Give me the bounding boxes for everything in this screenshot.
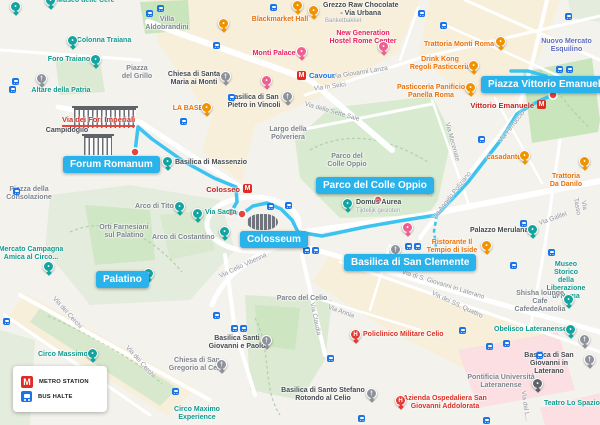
teal-poi-pin[interactable]: • (10, 1, 21, 12)
pin-glyph: † (224, 74, 227, 80)
university-pin[interactable]: • (532, 378, 543, 389)
pin-glyph: † (220, 362, 223, 368)
pin-glyph: † (40, 76, 43, 82)
bus-stop-icon[interactable] (3, 318, 10, 325)
teal-poi-pin[interactable]: • (87, 348, 98, 359)
bus-stop-icon[interactable] (285, 202, 292, 209)
bus-stop-icon[interactable] (240, 325, 247, 332)
pin-glyph: • (531, 227, 533, 233)
bus-stop-icon[interactable] (548, 249, 555, 256)
map-label-museo-delle-cere[interactable]: Museo delle Cere (57, 0, 115, 5)
bus-stop-icon[interactable] (270, 4, 277, 11)
highlighted-street-label: Via dei Fori Imperiali (62, 115, 135, 127)
bus-stop-icon[interactable] (228, 94, 235, 101)
pin-glyph: • (166, 159, 168, 165)
church-pin[interactable]: † (366, 388, 377, 399)
map-label-parco-del-celio: Parco del Celio (277, 295, 328, 303)
map-label-casadante[interactable]: casadante (487, 154, 521, 162)
orange-poi-pin[interactable]: • (495, 36, 506, 47)
pin-glyph: • (47, 264, 49, 270)
pin-glyph: • (49, 0, 51, 4)
map-label-shisha-lounge-cafe: Shisha lounge Cafe CafedeAnatolia (510, 290, 570, 314)
bus-stop-icon[interactable] (267, 203, 274, 210)
bus-stop-icon[interactable] (303, 247, 310, 254)
map-label-via-annia: Via Annia (327, 304, 355, 320)
pin-glyph: • (485, 243, 487, 249)
teal-poi-pin[interactable]: • (527, 224, 538, 235)
bus-stop-icon[interactable] (483, 417, 490, 424)
destination-label-forum-romanum[interactable]: Forum Romanum (63, 156, 160, 173)
map-label-colonna-traiana[interactable]: Colonna Traiana (77, 37, 131, 45)
bus-stop-icon[interactable] (172, 388, 179, 395)
church-pin[interactable]: † (220, 71, 231, 82)
map-label-trattoria-da-danilo[interactable]: Trattoria Da Danilo (549, 173, 583, 189)
pink-poi-pin[interactable]: • (402, 222, 413, 233)
pin-glyph: • (223, 229, 225, 235)
destination-label-basilica-di-san-clemente[interactable]: Basilica di San Clemente (344, 254, 476, 271)
map-label-basilica-santi[interactable]: Basilica Santi Giovanni e Paolo (209, 335, 266, 351)
map-label-chiesa-di-santa[interactable]: Chiesa di Santa Maria ai Monti (168, 71, 220, 87)
pin-glyph: † (286, 94, 289, 100)
church-pin[interactable]: † (282, 91, 293, 102)
map-label-foro-traiano[interactable]: Foro Traiano (48, 56, 90, 64)
map-label-altare-della-patria[interactable]: Altare della Patria (31, 87, 90, 95)
map-label-blackmarket-hall[interactable]: Blackmarket Hall (252, 16, 308, 24)
metro-station-icon[interactable]: M (243, 184, 252, 193)
orange-poi-pin[interactable]: • (308, 5, 319, 16)
map-label-mercato-campagna[interactable]: Mercato Campagna Amica al Circo... (0, 246, 63, 262)
teal-poi-pin[interactable]: • (90, 54, 101, 65)
map-label-drink-kong[interactable]: Drink Kong Regoli Pasticceria (410, 56, 470, 72)
pin-glyph: † (265, 338, 268, 344)
bus-stop-icon[interactable] (503, 340, 510, 347)
orange-poi-pin[interactable]: • (468, 60, 479, 71)
hospital-pin[interactable]: H (350, 329, 361, 340)
church-pin[interactable]: † (216, 359, 227, 370)
map-label-arco-di-tito: Arco di Tito (135, 203, 174, 211)
destination-label-colosseum[interactable]: Colosseum (240, 231, 308, 248)
bus-stop-icon[interactable] (312, 247, 319, 254)
teal-poi-pin[interactable]: • (565, 324, 576, 335)
map-label-via-galilei: Via Galilei (538, 211, 568, 228)
pin-glyph: • (569, 327, 571, 333)
teal-poi-pin[interactable]: • (174, 201, 185, 212)
map-label-via-claudia: Via Claudia (308, 302, 322, 336)
map-label-azienda-ospedaliera-san[interactable]: Azienda Ospedaliera San Giovanni Addolor… (403, 395, 487, 411)
teal-poi-pin[interactable]: • (43, 261, 54, 272)
pink-poi-pin[interactable]: • (261, 75, 272, 86)
teal-poi-pin[interactable]: • (67, 35, 78, 46)
pin-glyph: • (472, 63, 474, 69)
bus-stop-icon[interactable] (566, 66, 573, 73)
pin-glyph: • (265, 78, 267, 84)
church-pin[interactable]: † (584, 354, 595, 365)
pin-glyph: • (300, 49, 302, 55)
teal-poi-pin[interactable]: • (563, 294, 574, 305)
pin-glyph: • (94, 57, 96, 63)
pin-glyph: • (205, 105, 207, 111)
map-label-pasticceria-panificio[interactable]: Pasticceria Panificio Panella Roma (397, 84, 465, 100)
map-label-via-tasso: Via Tasso (571, 195, 589, 217)
map-label-via-ferruccio: Via Ferruccio (497, 110, 526, 145)
pin-glyph: • (71, 38, 73, 44)
map-label-la-base[interactable]: LA BASE (173, 105, 203, 113)
map-label-via-dei-cerchi: Via dei Cerchi (124, 345, 157, 380)
pin-glyph: † (370, 391, 373, 397)
map-label-monti-palace[interactable]: Monti Palace (253, 50, 296, 58)
bus-stop-icon[interactable] (358, 415, 365, 422)
map-label-basilica-di-san[interactable]: Basilica di San Giovanni in Laterano (524, 352, 575, 376)
map-label-domus-aurea[interactable]: Domus Aurea (356, 199, 401, 207)
pin-glyph: H (353, 332, 357, 338)
bus-stop-icon[interactable] (157, 5, 164, 12)
orange-poi-pin[interactable]: • (218, 18, 229, 29)
map-label-piazza: Piazza del Grillo (122, 65, 152, 81)
orange-poi-pin[interactable]: • (465, 82, 476, 93)
metro-station-icon[interactable]: M (297, 71, 306, 80)
pin-glyph: • (222, 21, 224, 27)
destination-label-parco-del-colle-oppio[interactable]: Parco del Colle Oppio (316, 177, 434, 194)
map-label-via-dei-ss-quattro: Via dei SS. Quattro (430, 290, 483, 320)
map-label-via-sacra[interactable]: Via Sacra (205, 209, 236, 217)
teal-poi-pin[interactable]: • (162, 156, 173, 167)
orange-poi-pin[interactable]: • (519, 150, 530, 161)
map-label-grezzo-raw-chocolate[interactable]: Grezzo Raw Chocolate - Via Urbana (323, 2, 398, 18)
orange-poi-pin[interactable]: • (481, 240, 492, 251)
map-label-basilica-di-massenzio[interactable]: Basilica di Massenzio (175, 159, 247, 167)
map-label-orti-farnesiani: Orti Farnesiani sul Palatino (99, 224, 148, 240)
bus-stop-icon[interactable] (565, 13, 572, 20)
pin-glyph: • (196, 211, 198, 217)
map-label-banketbakker: Banketbakker (325, 18, 362, 25)
teal-poi-pin[interactable]: • (342, 198, 353, 209)
map-label-pontificia-universit: Pontificia Università Lateranense (467, 374, 534, 390)
pin-glyph: • (536, 381, 538, 387)
map-label-arco-di-costantino: Arco di Costantino (152, 234, 215, 242)
map-label-via-angelo-poliziano: Via Angelo Poliziano (431, 170, 473, 221)
bus-stop-icon[interactable] (556, 66, 563, 73)
bus-stop-icon[interactable] (440, 22, 447, 29)
teal-poi-pin[interactable]: • (45, 0, 56, 6)
pin-glyph: • (382, 44, 384, 50)
bus-stop-icon[interactable] (327, 355, 334, 362)
map-label-villa: Villa Aldobrandini (145, 16, 188, 32)
metro-icon: M (21, 376, 33, 388)
bus-stop-icon[interactable] (459, 327, 466, 334)
bus-stop-icon[interactable] (146, 10, 153, 17)
legend-bus-label: BUS HALTE (38, 394, 73, 400)
pin-glyph: H (398, 398, 402, 404)
bus-stop-icon[interactable] (510, 262, 517, 269)
pin-glyph: • (469, 85, 471, 91)
bus-stop-icon[interactable] (405, 243, 412, 250)
colosseum-icon (247, 214, 278, 230)
bus-stop-icon[interactable] (231, 325, 238, 332)
map-label-via-mecenate: Via Mecenate (443, 122, 460, 162)
bus-stop-icon[interactable] (213, 42, 220, 49)
map-label-circo-maximo[interactable]: Circo Maximo Experience (174, 406, 220, 422)
map-label-parco-del: Parco del Colle Oppio (327, 153, 366, 169)
church-pin[interactable]: † (261, 335, 272, 346)
bus-icon (21, 391, 32, 402)
temple-icon (84, 136, 112, 155)
map-label-policlinico-militare-celio[interactable]: Policlinico Militare Celio (363, 331, 444, 339)
legend-metro-label: METRO STATION (39, 379, 89, 385)
bus-stop-icon[interactable] (213, 312, 220, 319)
map-label-via-in-selci: Via in Selci (314, 81, 347, 93)
teal-poi-pin[interactable]: • (219, 226, 230, 237)
map-canvas[interactable]: Museo delle CereColonna TraianaForo Trai… (0, 0, 600, 425)
bus-stop-icon[interactable] (536, 352, 543, 359)
bus-stop-icon[interactable] (418, 10, 425, 17)
map-legend: M METRO STATION BUS HALTE (13, 366, 107, 412)
legend-row-metro: M METRO STATION (21, 376, 99, 388)
map-label-circo-massimo[interactable]: Circo Massimo (38, 351, 88, 359)
pin-glyph: • (567, 297, 569, 303)
orange-poi-pin[interactable]: • (201, 102, 212, 113)
pin-glyph: • (406, 225, 408, 231)
orange-poi-pin[interactable]: • (292, 0, 303, 11)
pin-glyph: • (296, 3, 298, 9)
bus-stop-icon[interactable] (520, 220, 527, 227)
map-label-via-delle-sette-sale: Via delle Sette Sale (304, 101, 360, 124)
pin-glyph: • (583, 159, 585, 165)
map-label-basilica-di-san[interactable]: Basilica di San Pietro in Vincoli (228, 94, 281, 110)
pin-glyph: • (523, 153, 525, 159)
map-label-via-di-s-giovanni-in-laterano: Via di S. Giovanni in Laterano (401, 269, 485, 301)
map-label-trattoria-monti-roma[interactable]: Trattoria Monti Roma (424, 41, 494, 49)
metro-station-label-vittorio-emanuele[interactable]: Vittorio Emanuele (470, 101, 534, 110)
orange-poi-pin[interactable]: • (579, 156, 590, 167)
pin-glyph: † (583, 337, 586, 343)
pink-poi-pin[interactable]: • (296, 46, 307, 57)
overlay-layer: Museo delle CereColonna TraianaForo Trai… (0, 0, 600, 425)
pin-glyph: † (588, 357, 591, 363)
bus-stop-icon[interactable] (13, 188, 20, 195)
map-label-tijdelijk-gesloten: Tijdelijk gesloten (356, 208, 400, 215)
map-label-nuovo-mercato-esquilino[interactable]: Nuovo Mercato Esquilino (533, 38, 600, 54)
pin-glyph: † (394, 247, 397, 253)
bus-stop-icon[interactable] (478, 136, 485, 143)
pin-glyph: • (499, 39, 501, 45)
map-label-palazzo-merulana[interactable]: Palazzo Merulana (470, 227, 528, 235)
metro-station-label-cavour[interactable]: Cavour (309, 71, 335, 80)
pin-glyph: • (14, 4, 16, 10)
bus-stop-icon[interactable] (414, 243, 421, 250)
legend-row-bus: BUS HALTE (21, 391, 99, 402)
map-label-via-dei-cerchi: Via dei Cerchi (51, 296, 84, 331)
destination-label-palatino[interactable]: Palatino (96, 271, 149, 288)
map-label-largo-della: Largo della Polveriera (269, 126, 306, 142)
bus-stop-icon[interactable] (9, 86, 16, 93)
map-label-teatro-lo-spazio[interactable]: Teatro Lo Spazio (544, 400, 600, 408)
bus-stop-icon[interactable] (180, 118, 187, 125)
map-label-basilica-di-santo-stefano[interactable]: Basilica di Santo Stefano Rotondo al Cel… (281, 387, 365, 403)
teal-poi-pin[interactable]: • (192, 208, 203, 219)
metro-station-icon[interactable]: M (537, 100, 546, 109)
church-pin[interactable]: † (36, 73, 47, 84)
pink-poi-pin[interactable]: • (378, 41, 389, 52)
church-pin[interactable]: † (579, 334, 590, 345)
map-label-ristorante-il[interactable]: Ristorante Il Tempio di Iside (427, 239, 477, 255)
pin-glyph: • (312, 8, 314, 14)
destination-label-piazza-vittorio-emanuele[interactable]: Piazza Vittorio Emanuele (481, 76, 600, 93)
pin-glyph: • (178, 204, 180, 210)
map-label-via-del-l: Via del L... (519, 390, 531, 421)
map-label-obelisco-lateranense[interactable]: Obelisco Lateranense (494, 326, 567, 334)
pin-glyph: • (346, 201, 348, 207)
map-label-via-celio-vibenna: Via Celio Vibenna (218, 252, 268, 281)
metro-station-label-colosseo[interactable]: Colosseo (206, 185, 240, 194)
hospital-pin[interactable]: H (395, 395, 406, 406)
pin-glyph: • (91, 351, 93, 357)
bus-stop-icon[interactable] (486, 343, 493, 350)
map-label-via-giovanni-lanza: Via Giovanni Lanza (332, 65, 389, 81)
bus-stop-icon[interactable] (12, 78, 19, 85)
